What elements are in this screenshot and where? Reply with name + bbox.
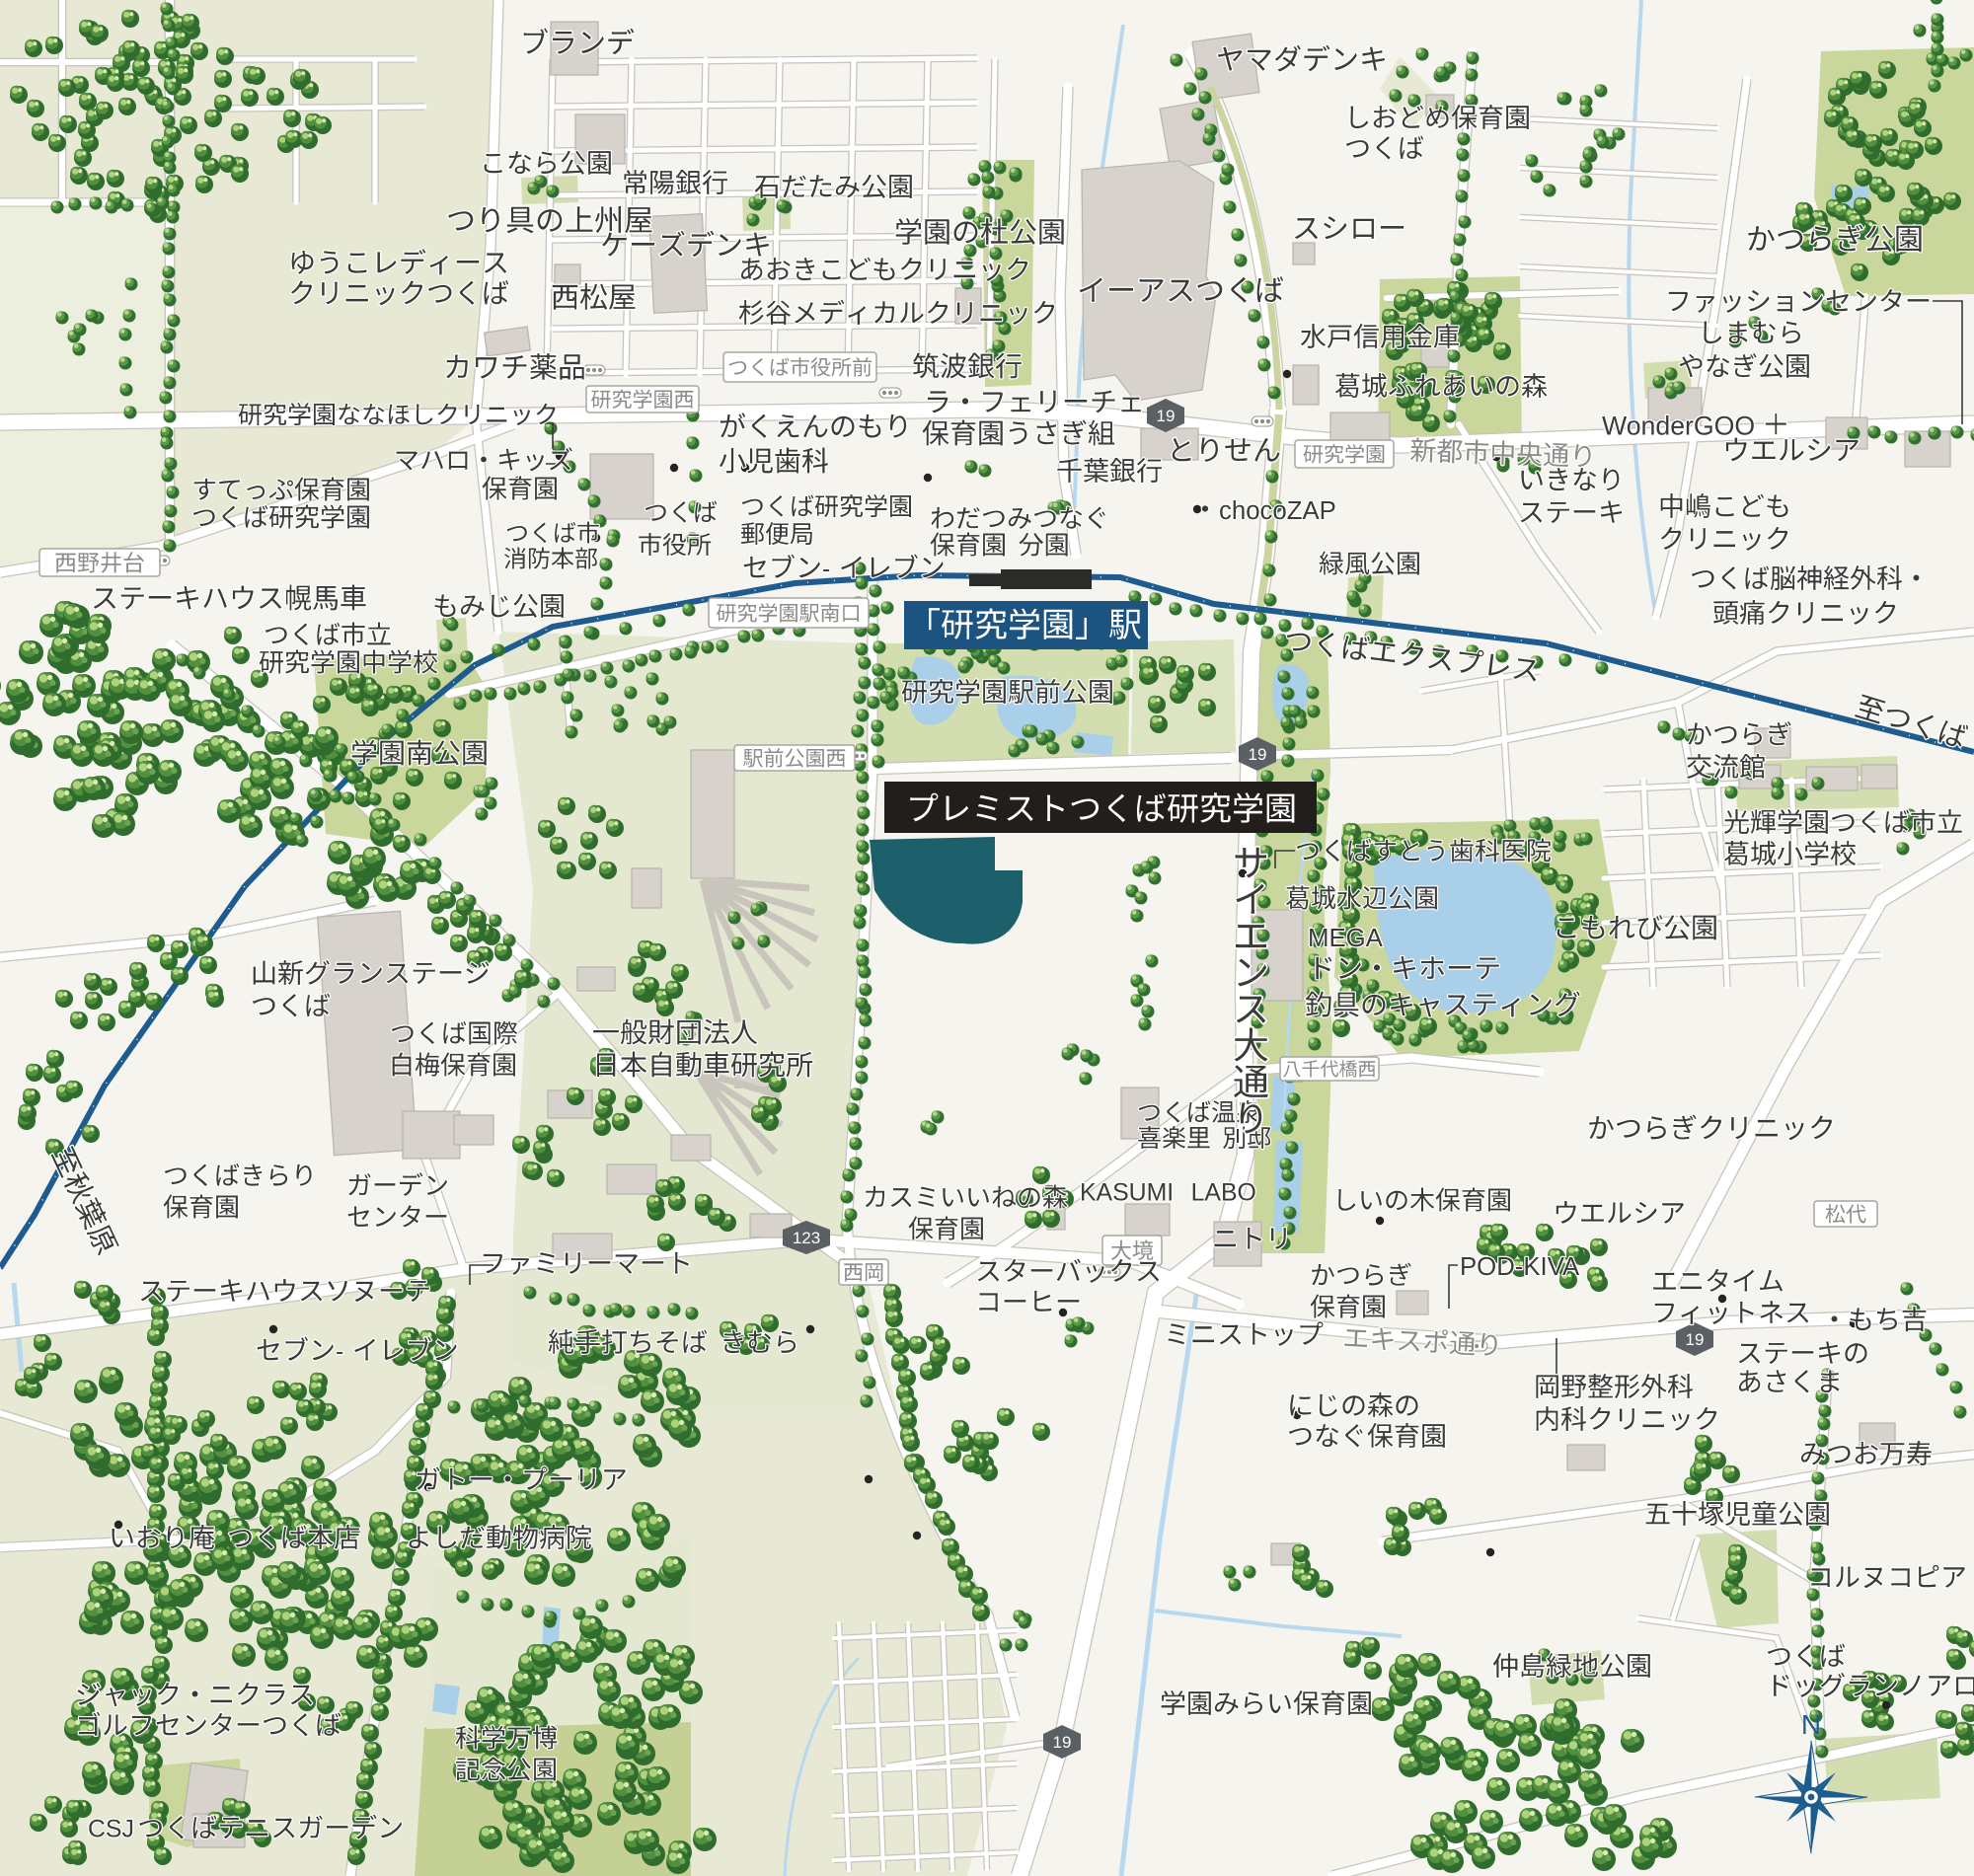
svg-text:19: 19 [1249, 745, 1267, 764]
svg-text:19: 19 [1157, 407, 1176, 425]
svg-text:19: 19 [1686, 1330, 1705, 1349]
svg-text:N: N [1801, 1709, 1821, 1740]
svg-text:19: 19 [1053, 1733, 1072, 1752]
svg-text:123: 123 [793, 1229, 820, 1247]
